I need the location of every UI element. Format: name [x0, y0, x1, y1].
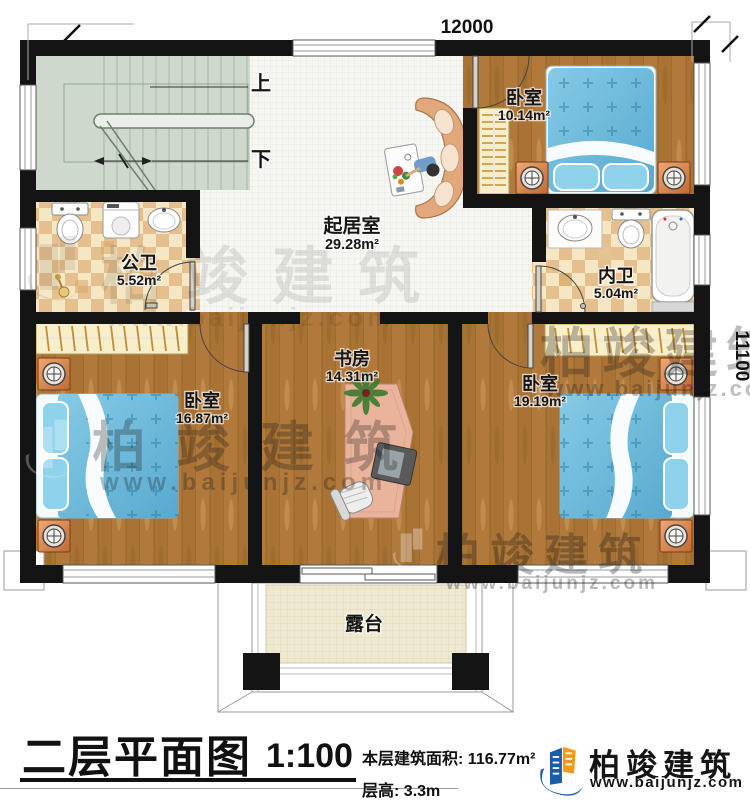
pillow: [554, 164, 599, 190]
window: [694, 397, 710, 515]
nightstand: [38, 358, 70, 390]
pillow: [664, 458, 689, 510]
pillow: [603, 164, 648, 190]
svg-text:www.baijunjz.com: www.baijunjz.com: [445, 573, 658, 594]
terrace-column: [452, 653, 489, 690]
sink-icon: [148, 208, 180, 232]
bed: [546, 66, 656, 194]
nightstand: [660, 520, 692, 552]
drawing-title: 二层平面图: [22, 721, 252, 785]
pier-outline: [706, 551, 746, 590]
bedroom-right-area: 19.19m²: [514, 393, 566, 409]
floor-area-text: 本层建筑面积: 116.77m²: [362, 745, 535, 769]
private-bath-area: 5.04m²: [594, 285, 639, 301]
drawing-scale: 1:100: [266, 737, 353, 776]
private-bath-label: 内卫: [598, 265, 634, 286]
terrace: [218, 583, 513, 712]
study-area: 14.31m²: [326, 368, 378, 384]
title-underline: [20, 778, 356, 782]
living-room-area: 29.28m²: [325, 237, 379, 253]
stair-railing: [94, 114, 254, 128]
window: [293, 40, 435, 56]
public-bath-area: 5.52m²: [117, 272, 162, 288]
floorplan-page: 柏竣建筑 www.baijunjz.com 柏竣建筑 www.baijunjz.…: [0, 0, 750, 803]
svg-text:www.baijunjz.com: www.baijunjz.com: [545, 376, 750, 401]
dim-tick: [694, 16, 710, 32]
bedroom-top-area: 10.14m²: [498, 107, 550, 123]
floorplan-drawing: 柏竣建筑 www.baijunjz.com 柏竣建筑 www.baijunjz.…: [0, 0, 750, 715]
floor-height-text: 层高: 3.3m: [362, 777, 440, 801]
study-label: 书房: [334, 348, 370, 369]
bedroom-right-label: 卧室: [522, 373, 558, 394]
brand-url: www.baijunjz.com: [590, 774, 743, 791]
window: [694, 235, 710, 285]
washing-machine-icon: [103, 202, 139, 238]
terrace-label: 露台: [345, 612, 383, 635]
stair-down-label: 下: [251, 149, 271, 171]
window: [20, 85, 36, 170]
nightstand: [38, 520, 70, 552]
stair-up-label: 上: [251, 72, 271, 95]
watermark: 柏竣建筑 www.baijunjz.com: [540, 324, 750, 401]
bed: [560, 394, 694, 518]
pillow: [664, 402, 689, 454]
bedroom-left-area: 16.87m²: [176, 410, 228, 426]
svg-text:www.baijunjz.com: www.baijunjz.com: [99, 469, 387, 496]
dimension-right: 11100: [731, 331, 750, 382]
public-bath-label: 公卫: [121, 253, 157, 273]
dimension-top: 12000: [441, 17, 494, 38]
nightstand: [516, 162, 548, 194]
nightstand: [658, 162, 690, 194]
bathtub-icon: [652, 210, 694, 312]
bedroom-top-label: 卧室: [506, 87, 542, 108]
svg-text:柏竣建筑: 柏竣建筑: [540, 324, 750, 384]
brand-logo-icon: [537, 740, 585, 798]
svg-text:www.baijunjz.com: www.baijunjz.com: [105, 302, 394, 332]
living-room-label: 起居室: [322, 214, 380, 237]
bedroom-left-label: 卧室: [184, 390, 220, 411]
window: [694, 63, 710, 185]
dim-tick: [64, 25, 80, 41]
title-block: 二层平面图 1:100 本层建筑面积: 116.77m² 层高: 3.3m 柏竣…: [0, 715, 750, 803]
sink-icon: [558, 215, 592, 241]
window: [63, 565, 215, 583]
terrace-column: [243, 653, 280, 690]
